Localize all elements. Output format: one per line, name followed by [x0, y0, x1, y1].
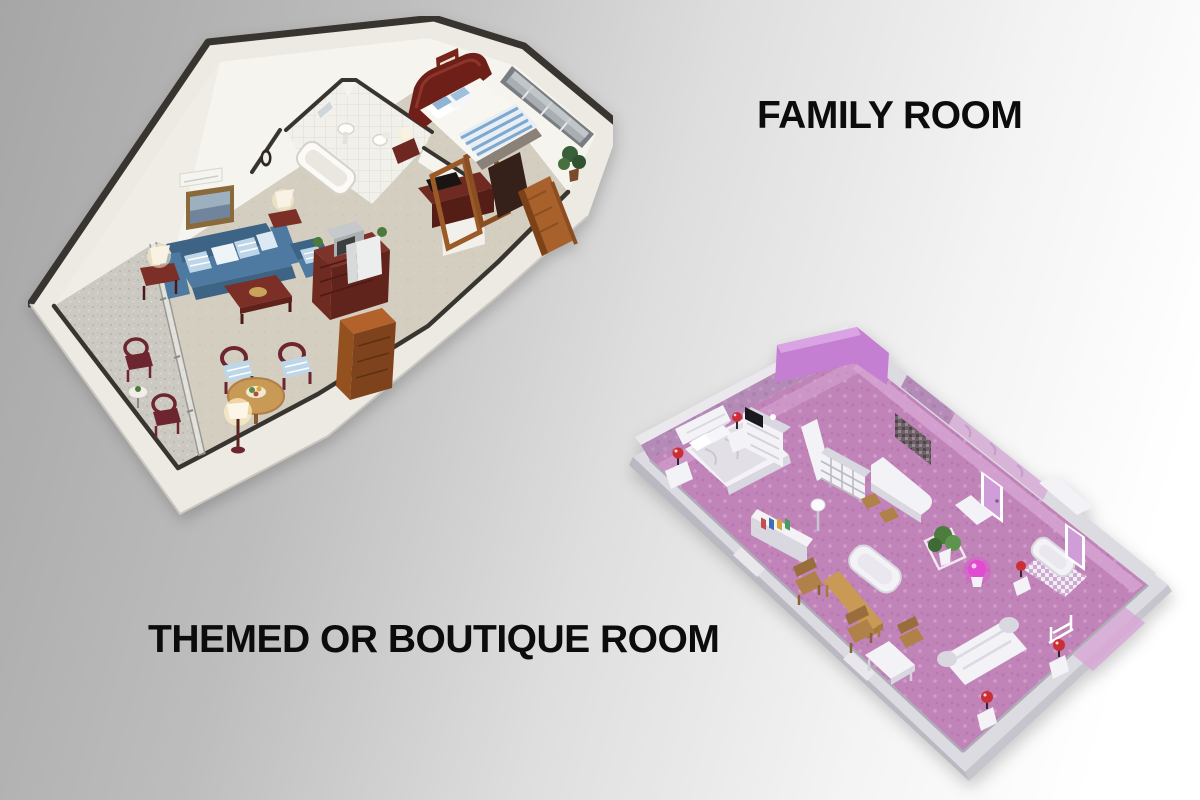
family-room-floorplan: [28, 16, 613, 521]
stage: FAMILY ROOM THEMED OR BOUTIQUE ROOM: [0, 0, 1200, 800]
plant-small-icon: [313, 237, 323, 247]
family-room-label: FAMILY ROOM: [757, 94, 1022, 138]
themed-or-boutique-room-floorplan: [625, 325, 1185, 785]
orange-chest: [336, 308, 396, 400]
themed-room-label: THEMED OR BOUTIQUE ROOM: [148, 618, 719, 662]
